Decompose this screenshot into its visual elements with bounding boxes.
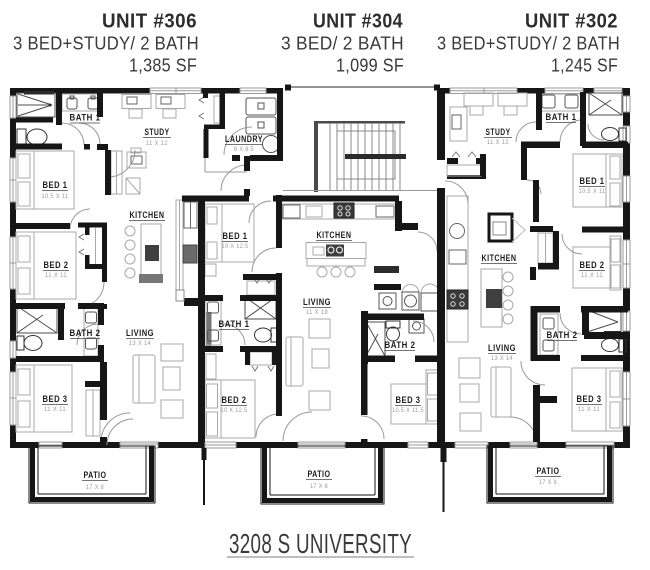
svg-text:BED 3: BED 3 [577,394,602,404]
svg-text:10.5 X 11: 10.5 X 11 [579,188,606,195]
svg-text:BED 1: BED 1 [43,180,68,190]
svg-text:10.5 X 11: 10.5 X 11 [42,193,69,200]
svg-text:STUDY: STUDY [145,127,170,137]
svg-text:BATH 1: BATH 1 [546,112,577,122]
svg-text:1,385 SF: 1,385 SF [129,56,197,76]
svg-text:3 BED/ 2 BATH: 3 BED/ 2 BATH [281,34,404,54]
svg-text:13 X 14: 13 X 14 [491,355,513,362]
svg-text:STUDY: STUDY [486,127,511,137]
svg-text:11 X 11: 11 X 11 [45,272,67,279]
svg-text:BATH 1: BATH 1 [219,319,250,329]
svg-text:LIVING: LIVING [126,328,154,338]
svg-text:LAUNDRY: LAUNDRY [225,134,263,144]
svg-text:BATH 1: BATH 1 [70,113,101,123]
svg-text:UNIT #304: UNIT #304 [313,11,403,33]
svg-text:BATH 2: BATH 2 [385,340,416,350]
svg-text:8 X 8.5: 8 X 8.5 [234,146,254,153]
svg-text:KITCHEN: KITCHEN [130,210,165,220]
svg-text:13 X 14: 13 X 14 [129,340,151,347]
svg-text:11 X 11: 11 X 11 [44,406,66,413]
svg-text:BED 3: BED 3 [396,395,421,405]
svg-text:1,245 SF: 1,245 SF [551,56,618,76]
svg-text:UNIT #302: UNIT #302 [525,11,618,33]
svg-text:3 BED+STUDY/ 2 BATH: 3 BED+STUDY/ 2 BATH [13,34,199,54]
svg-text:11 X 19: 11 X 19 [306,309,328,316]
svg-text:3 BED+STUDY/ 2 BATH: 3 BED+STUDY/ 2 BATH [437,34,620,54]
svg-text:PATIO: PATIO [537,466,560,476]
svg-text:BED 1: BED 1 [580,176,605,186]
svg-text:BATH 2: BATH 2 [70,328,101,338]
svg-text:LIVING: LIVING [303,297,331,307]
svg-text:11 X 12: 11 X 12 [146,140,168,147]
svg-text:UNIT #306: UNIT #306 [102,11,197,33]
svg-text:10 X 12.5: 10 X 12.5 [222,243,249,250]
svg-text:PATIO: PATIO [308,469,331,479]
svg-text:PATIO: PATIO [84,470,107,480]
svg-text:LIVING: LIVING [488,343,516,353]
svg-text:BED 2: BED 2 [44,260,69,270]
svg-text:10 X 12.5: 10 X 12.5 [221,407,248,414]
svg-text:11 X 11: 11 X 11 [578,406,600,413]
svg-text:17 X 8: 17 X 8 [539,479,557,486]
svg-text:KITCHEN: KITCHEN [482,253,517,263]
svg-text:BATH 2: BATH 2 [547,330,578,340]
svg-text:1,099 SF: 1,099 SF [336,56,404,76]
svg-text:11 X 11: 11 X 11 [581,272,603,279]
svg-text:10.5 X 11.5: 10.5 X 11.5 [392,407,424,414]
svg-text:17 X 8: 17 X 8 [86,484,104,491]
svg-text:BED 1: BED 1 [223,231,248,241]
svg-text:17 X 8: 17 X 8 [310,483,328,490]
svg-text:BED 3: BED 3 [43,394,68,404]
svg-text:3208 S UNIVERSITY: 3208 S UNIVERSITY [229,528,412,559]
svg-text:BED 2: BED 2 [580,260,605,270]
svg-text:11 X 12: 11 X 12 [487,139,509,146]
svg-text:KITCHEN: KITCHEN [317,230,352,240]
svg-text:BED 2: BED 2 [222,395,247,405]
